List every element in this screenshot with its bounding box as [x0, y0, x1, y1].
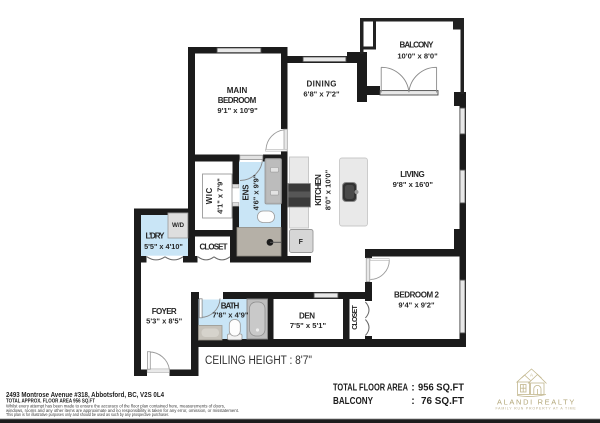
svg-text:CLOSET: CLOSET: [200, 243, 228, 252]
svg-text:4'1" x 7'9": 4'1" x 7'9": [216, 178, 225, 214]
svg-text:This plan is for illustrative: This plan is for illustrative purposes o…: [6, 412, 169, 417]
svg-text:DINING: DINING: [307, 80, 337, 89]
svg-text:WIC: WIC: [205, 188, 214, 205]
svg-text::: :: [411, 382, 415, 394]
svg-text:BATH: BATH: [221, 301, 240, 310]
svg-text:TOTAL FLOOR AREA: TOTAL FLOOR AREA: [333, 382, 408, 394]
svg-text:BALCONY: BALCONY: [333, 395, 373, 407]
svg-text:DEN: DEN: [299, 311, 315, 320]
svg-text:7'8" x 4'9": 7'8" x 4'9": [212, 311, 249, 320]
svg-text:76 SQ.FT: 76 SQ.FT: [421, 395, 465, 407]
svg-text:F: F: [299, 239, 304, 246]
svg-text:MAIN: MAIN: [227, 86, 248, 95]
svg-text:6'8" x 7'2": 6'8" x 7'2": [303, 90, 340, 99]
svg-text:5'3" x 8'5": 5'3" x 8'5": [146, 317, 183, 326]
svg-text:W/D: W/D: [172, 222, 184, 229]
svg-text:CEILING HEIGHT : 8'7": CEILING HEIGHT : 8'7": [205, 355, 312, 367]
svg-text:ENS: ENS: [242, 184, 251, 201]
svg-text:A: A: [530, 373, 533, 378]
svg-text:9'1" x 10'9": 9'1" x 10'9": [217, 106, 258, 115]
svg-text:ALANDI REALTY: ALANDI REALTY: [497, 398, 576, 407]
svg-text:FAMILY RUN PROPERTY AT A TIME: FAMILY RUN PROPERTY AT A TIME: [495, 407, 576, 411]
svg-text:BEDROOM 2: BEDROOM 2: [394, 290, 440, 299]
svg-text:9'4" x 9'2": 9'4" x 9'2": [398, 300, 435, 309]
svg-text:10'0" x 8'0": 10'0" x 8'0": [397, 52, 438, 61]
svg-text:4'6" x 9'9": 4'6" x 9'9": [252, 174, 261, 210]
svg-text:8'0" x 10'0": 8'0" x 10'0": [324, 169, 333, 210]
svg-text:5'5" x 4'10": 5'5" x 4'10": [144, 242, 183, 251]
svg-text:LIVING: LIVING: [400, 170, 425, 179]
svg-text:L’DRY: L’DRY: [146, 232, 166, 241]
svg-text:FOYER: FOYER: [152, 307, 177, 316]
svg-text:CLOSET: CLOSET: [352, 305, 359, 330]
svg-text:9'8" x 16'0": 9'8" x 16'0": [393, 180, 434, 189]
svg-text:7'5" x 5'1": 7'5" x 5'1": [290, 321, 327, 330]
svg-text:956 SQ.FT: 956 SQ.FT: [418, 382, 465, 394]
svg-text:BALCONY: BALCONY: [400, 41, 435, 50]
svg-text:KITCHEN: KITCHEN: [314, 174, 323, 206]
svg-text::: :: [411, 395, 415, 407]
svg-text:BEDROOM: BEDROOM: [218, 96, 257, 105]
